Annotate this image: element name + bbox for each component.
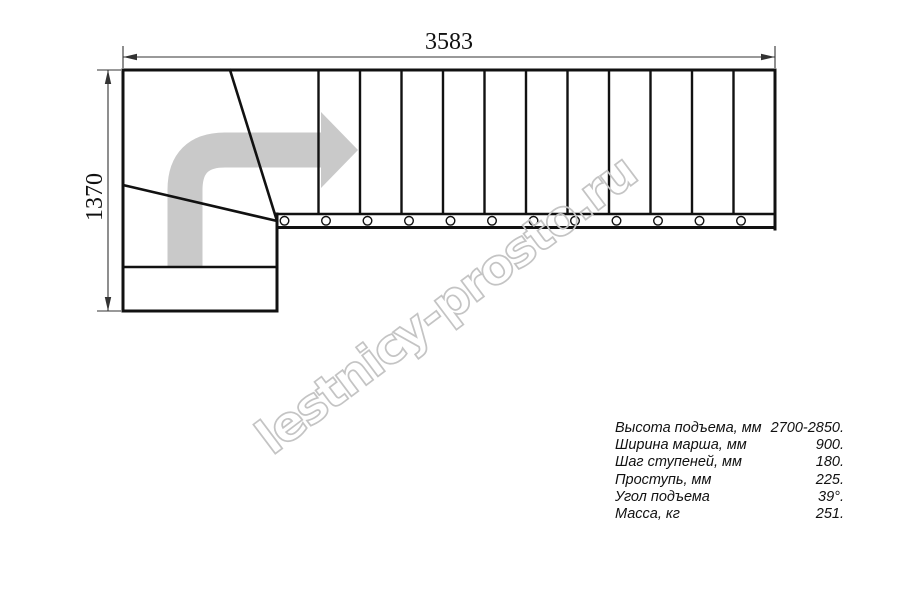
- spec-value: 225.: [816, 472, 844, 489]
- spec-value: 180.: [816, 454, 844, 471]
- spec-label: Ширина марша, мм: [615, 437, 747, 454]
- spec-row-rise-height: Высота подъема, мм 2700-2850.: [615, 420, 844, 437]
- spec-label: Проступь, мм: [615, 472, 711, 489]
- baluster-circle: [654, 217, 663, 226]
- spec-label: Угол подъема: [615, 489, 710, 506]
- direction-arrow-head-icon: [321, 112, 358, 188]
- baluster-circle: [488, 217, 497, 226]
- spec-row-flight-width: Ширина марша, мм 900.: [615, 437, 844, 454]
- spec-row-tread: Проступь, мм 225.: [615, 472, 844, 489]
- spec-row-step-pitch: Шаг ступеней, мм 180.: [615, 454, 844, 471]
- baluster-circle: [405, 217, 414, 226]
- dimension-top: 3583: [123, 29, 775, 68]
- dimension-arrow-right-icon: [761, 54, 775, 60]
- spec-label: Масса, кг: [615, 506, 680, 523]
- spec-row-rise-angle: Угол подъема 39°.: [615, 489, 844, 506]
- baluster-circle: [280, 217, 289, 226]
- dimension-height-label: 1370: [82, 173, 108, 221]
- baluster-circle: [322, 217, 331, 226]
- spec-label: Высота подъема, мм: [615, 420, 762, 437]
- stair-drawing-page: 3583 1370 lestnicy-prosto.ru Высота подъ…: [0, 0, 900, 600]
- dimension-arrow-up-icon: [105, 70, 111, 84]
- baluster-circle: [695, 217, 704, 226]
- spec-row-mass: Масса, кг 251.: [615, 506, 844, 523]
- dimension-left: 1370: [82, 70, 121, 311]
- baluster-circle: [446, 217, 455, 226]
- step-dividers: [319, 70, 734, 214]
- dimension-arrow-left-icon: [123, 54, 137, 60]
- baluster-circle: [612, 217, 621, 226]
- specs-table: Высота подъема, мм 2700-2850. Ширина мар…: [615, 420, 844, 523]
- spec-value: 2700-2850.: [771, 420, 844, 437]
- direction-arrow-shaft: [185, 150, 321, 266]
- baluster-circle: [737, 217, 746, 226]
- watermark: lestnicy-prosto.ru: [245, 144, 646, 466]
- dimension-width-label: 3583: [425, 29, 473, 55]
- spec-value: 39°.: [818, 489, 844, 506]
- watermark-text: lestnicy-prosto.ru: [245, 144, 646, 466]
- spec-label: Шаг ступеней, мм: [615, 454, 742, 471]
- spec-value: 251.: [816, 506, 844, 523]
- baluster-circle: [363, 217, 372, 226]
- spec-value: 900.: [816, 437, 844, 454]
- direction-arrow: [185, 112, 358, 266]
- dimension-arrow-down-icon: [105, 297, 111, 311]
